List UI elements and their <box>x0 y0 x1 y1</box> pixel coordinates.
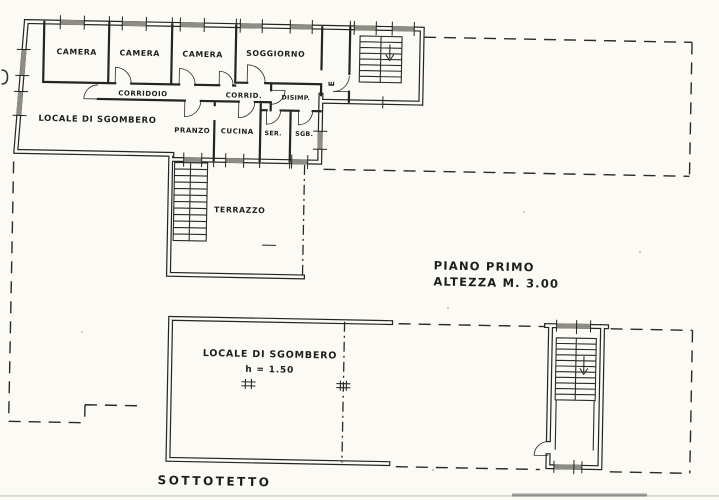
staircase-icon <box>173 162 207 241</box>
window-icon <box>184 157 202 162</box>
exterior-wall <box>14 21 423 279</box>
dashed-boundary-lower <box>396 324 693 474</box>
roof-window-icon <box>241 379 255 389</box>
scan-mark <box>2 70 8 84</box>
dashed-boundary-upper <box>324 35 693 176</box>
scan-speck <box>639 251 641 253</box>
room-label-disimp: DISIMP. <box>282 94 311 102</box>
door-sgb <box>298 111 312 125</box>
window-icon <box>226 158 244 163</box>
floorplan-scan: CAMERA CAMERA CAMERA SOGGIORNO CORRIDOIO… <box>0 0 719 500</box>
door-locale <box>84 85 98 99</box>
room-label-locale-sgombero-sottotetto: LOCALE DI SGOMBERO <box>203 348 338 362</box>
door-camera-2 <box>179 69 195 85</box>
attic-divider <box>342 322 345 463</box>
plan-group: CAMERA CAMERA CAMERA SOGGIORNO CORRIDOIO… <box>5 14 698 497</box>
door-soggiorno <box>247 65 265 83</box>
window-icon <box>557 323 591 328</box>
dashed-boundary-left <box>9 161 148 424</box>
stairs-terrace <box>173 162 207 241</box>
window-icon <box>19 91 21 115</box>
door-camera-3 <box>219 71 233 85</box>
door-pranzo <box>185 101 201 117</box>
window-icon <box>240 23 262 28</box>
scan-edge-line <box>512 494 647 497</box>
piano-primo-plan: CAMERA CAMERA CAMERA SOGGIORNO CORRIDOIO… <box>7 14 693 434</box>
window-icon <box>60 20 84 25</box>
room-label-cucina: CUCINA <box>221 127 254 136</box>
entrance-label: E <box>327 80 336 86</box>
window-icon <box>554 464 582 469</box>
room-label-camera-1: CAMERA <box>56 47 97 57</box>
window-icon <box>392 26 414 31</box>
stairs-upper <box>359 36 402 83</box>
window-icon <box>22 49 24 75</box>
scan-speck <box>432 469 434 471</box>
stairs-direction-arrow <box>386 44 394 60</box>
floor-caption-sottotetto: SOTTOTETTO <box>157 473 271 489</box>
scan-speck <box>81 331 83 333</box>
sottotetto-plan: LOCALE DI SGOMBERO h = 1.50 SOTTOTETTO <box>157 312 692 497</box>
stair-landing-walls <box>555 400 594 451</box>
window-icon <box>354 25 376 30</box>
staircase-icon <box>359 36 402 83</box>
room-height-note: h = 1.50 <box>245 365 294 376</box>
room-label-camera-3: CAMERA <box>182 50 223 60</box>
floor-caption-line2: ALTEZZA M. 3.00 <box>433 274 559 290</box>
window-icon <box>122 21 146 26</box>
scan-speck <box>523 211 525 213</box>
terrace-open-edge <box>302 165 304 277</box>
room-label-sgb: SGB. <box>295 131 313 138</box>
window-icon <box>318 131 323 149</box>
door-ser <box>266 110 280 124</box>
room-label-terrazzo: TERRAZZO <box>214 205 266 215</box>
door-cucina <box>239 102 255 118</box>
room-label-locale-sgombero: LOCALE DI SGOMBERO <box>38 114 156 126</box>
stairs-sottotetto <box>554 338 596 451</box>
floorplan-drawing: CAMERA CAMERA CAMERA SOGGIORNO CORRIDOIO… <box>0 0 719 500</box>
room-label-camera-2: CAMERA <box>119 48 160 58</box>
room-label-ser: SER. <box>264 130 282 137</box>
floor-caption-line1: PIANO PRIMO <box>434 258 535 274</box>
window-icon <box>290 24 312 29</box>
room-label-pranzo: PRANZO <box>174 126 210 135</box>
room-label-soggiorno: SOGGIORNO <box>246 49 305 59</box>
staircase-icon <box>555 338 596 401</box>
window-icon <box>180 22 204 27</box>
door-camera-1 <box>115 67 131 83</box>
scan-artifacts <box>0 70 719 497</box>
window-icon <box>292 159 308 164</box>
exterior-wall-hollow <box>168 318 607 467</box>
interior-walls <box>42 22 351 163</box>
scan-speck <box>447 307 449 309</box>
room-label-corrid: CORRID. <box>226 91 263 100</box>
exterior-wall <box>168 318 607 467</box>
room-label-corridoio: CORRIDOIO <box>118 89 167 98</box>
